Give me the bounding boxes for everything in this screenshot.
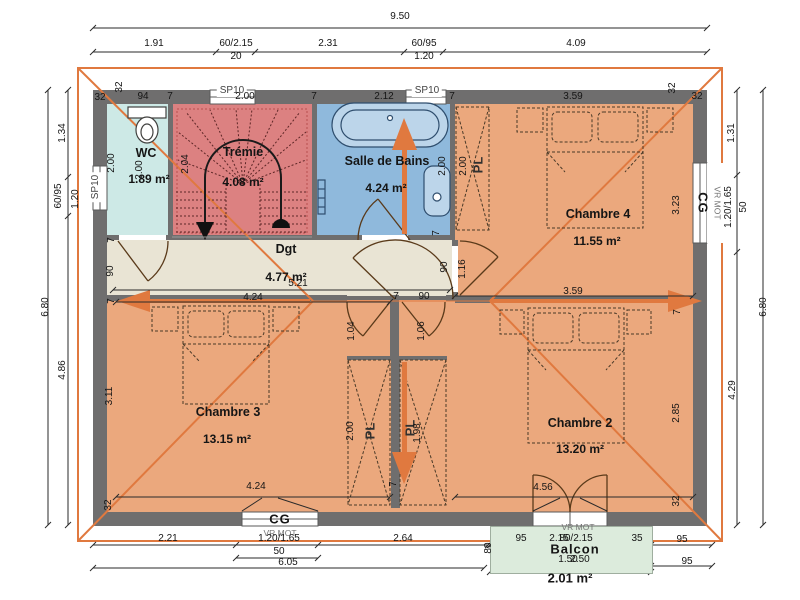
- bathtub: [332, 103, 448, 147]
- floor-plan-canvas: 9.501.9160/2.152.3160/954.09201.20SP10SP…: [0, 0, 800, 600]
- stairs: [176, 109, 307, 233]
- dim-label: 2.64: [393, 534, 412, 544]
- dim-label: 60/95: [54, 183, 64, 208]
- room-area-balcon: 2.01 m²: [548, 572, 593, 585]
- closet-label-pl: PL: [364, 423, 377, 440]
- dim-label: 20: [230, 52, 241, 62]
- room-label-chambre4: Chambre 4: [566, 208, 631, 221]
- dim-label: 2.00: [107, 153, 117, 172]
- dim-label: 32: [691, 92, 702, 102]
- toilet: [128, 107, 166, 143]
- window-label-vrmot: VR MOT: [561, 523, 594, 532]
- dim-label: 6.80: [41, 297, 51, 316]
- dim-label: 1.20: [414, 52, 433, 62]
- dim-label: 2.31: [318, 39, 337, 49]
- dim-label: 1.20: [71, 189, 81, 208]
- dim-label: 1.20/1.65: [258, 534, 300, 544]
- dim-label: 1.31: [727, 123, 737, 142]
- dim-label: 2.12: [374, 92, 393, 102]
- window-label-sp10: SP10: [412, 85, 442, 97]
- dim-label: 2.00: [135, 160, 145, 179]
- dim-label: 2.21: [158, 534, 177, 544]
- window-label-cg: CG: [269, 513, 291, 526]
- dim-label: 50: [273, 547, 284, 557]
- dim-label: 9.50: [390, 12, 409, 22]
- dim-label: 2.00: [235, 92, 254, 102]
- closet-label-pl: PL: [472, 157, 485, 174]
- dim-label: 94: [137, 92, 148, 102]
- dim-label: 1.98: [413, 423, 423, 442]
- radiator: [318, 180, 325, 214]
- dim-label: 4.24: [246, 482, 265, 492]
- dim-label: 32: [115, 81, 125, 92]
- dim-label: 7: [393, 292, 399, 302]
- room-area-chambre2: 13.20 m²: [556, 443, 604, 455]
- dim-label: 60/2.15: [219, 39, 252, 49]
- dim-label: 4.86: [58, 360, 68, 379]
- dim-label: 32: [94, 93, 105, 103]
- dim-label: 4.24: [243, 293, 262, 303]
- dim-label: 80: [484, 542, 494, 553]
- dim-label: 4.09: [566, 39, 585, 49]
- dim-label: 95: [515, 534, 526, 544]
- dim-label: 2.04: [181, 154, 191, 173]
- dim-label: 3.59: [563, 287, 582, 297]
- window-label-sp10: SP10: [90, 172, 102, 202]
- dim-label: 7: [389, 481, 399, 487]
- dim-label: 1.20/1.65: [724, 186, 734, 228]
- dim-label: 60/95: [411, 39, 436, 49]
- dim-label: 35: [631, 534, 642, 544]
- dim-label: 5.21: [288, 279, 307, 289]
- dim-label: 1.04: [347, 321, 357, 340]
- dim-label: 3.23: [672, 195, 682, 214]
- dim-label: 7: [107, 237, 117, 243]
- room-area-chambre3: 13.15 m²: [203, 433, 251, 445]
- dim-label: 4.29: [728, 380, 738, 399]
- dim-label: 1.34: [58, 123, 68, 142]
- dim-label: 3.11: [105, 387, 115, 406]
- dim-label: 1.06: [417, 321, 427, 340]
- dim-label: 90: [440, 261, 450, 272]
- dim-label: 4.56: [533, 483, 552, 493]
- room-area-chambre4: 11.55 m²: [573, 235, 620, 247]
- dim-label: 2.85: [672, 403, 682, 422]
- dim-label: 32: [668, 82, 678, 93]
- dim-label: 1.91: [144, 39, 163, 49]
- room-label-dgt: Dgt: [276, 243, 297, 256]
- window-label-cg: CG: [697, 192, 710, 214]
- dim-label: 7: [107, 298, 117, 304]
- room-label-sdb: Salle de Bains: [345, 155, 430, 168]
- room-label-chambre3: Chambre 3: [196, 406, 261, 419]
- dim-label: 7: [673, 309, 683, 315]
- dim-label: 7: [432, 230, 442, 236]
- dim-label: 2.00: [438, 156, 448, 175]
- dim-label: 7: [311, 92, 317, 102]
- dim-label: 95: [676, 535, 687, 545]
- dim-label: 95: [681, 557, 692, 567]
- window-label-vrmot: VR MOT: [713, 186, 722, 219]
- room-label-wc: WC: [136, 147, 157, 160]
- room-label-chambre2: Chambre 2: [548, 417, 613, 430]
- dim-label: 90: [418, 292, 429, 302]
- dim-label: 50: [739, 201, 749, 212]
- dim-label: 2.00: [346, 421, 356, 440]
- dim-label: 32: [672, 495, 682, 506]
- dim-label: 1.50: [558, 555, 577, 565]
- dim-label: 3.59: [563, 92, 582, 102]
- dim-label: 7: [167, 92, 173, 102]
- stair-start-marker: [272, 219, 290, 228]
- dim-label: 2.00: [459, 156, 469, 175]
- room-area-tremie: 4.08 m²: [222, 176, 263, 188]
- doors: [118, 199, 607, 512]
- dim-label: 6.05: [278, 558, 297, 568]
- dim-label: 90: [106, 265, 116, 276]
- dim-label: 7: [449, 92, 455, 102]
- room-label-tremie: Trémie: [223, 146, 263, 159]
- dim-label: 1.16: [458, 259, 468, 278]
- dim-label: 6.80: [759, 297, 769, 316]
- dim-label: 32: [104, 499, 114, 510]
- room-area-sdb: 4.24 m²: [365, 182, 406, 194]
